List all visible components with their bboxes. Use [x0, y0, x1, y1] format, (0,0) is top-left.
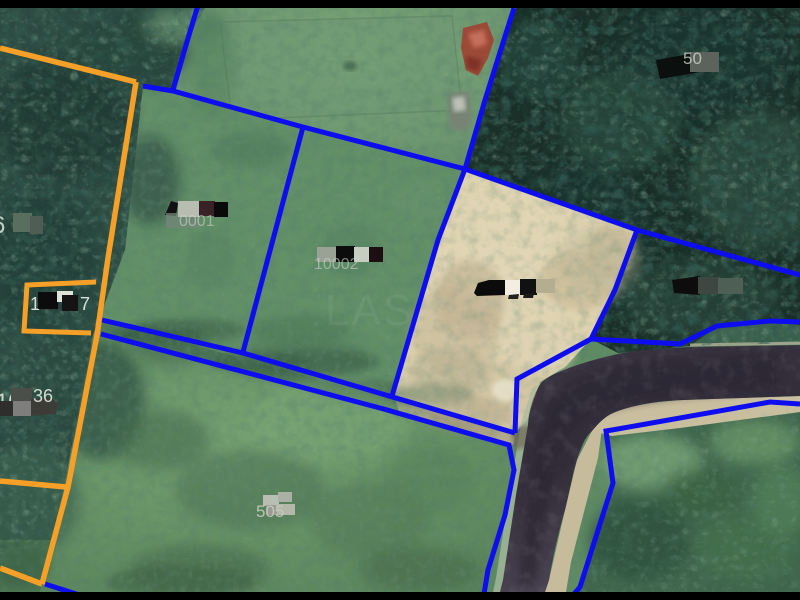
- svg-text:7: 7: [80, 294, 90, 314]
- svg-text:505: 505: [256, 502, 284, 521]
- svg-text:10002: 10002: [314, 256, 359, 273]
- svg-text:6: 6: [0, 212, 5, 239]
- svg-text:36: 36: [33, 386, 53, 406]
- svg-text:0001: 0001: [179, 213, 215, 230]
- svg-text:50: 50: [683, 49, 702, 68]
